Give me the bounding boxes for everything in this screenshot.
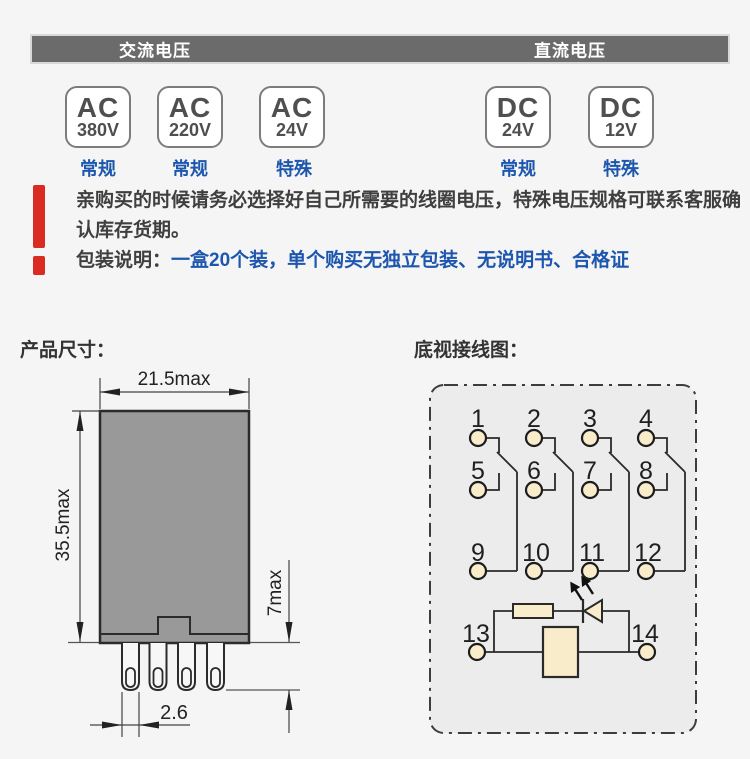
voltage-tag: 常规 xyxy=(157,155,223,181)
warning-exclamation-dot xyxy=(33,256,45,275)
wiring-section-title: 底视接线图： xyxy=(414,335,528,362)
pin-label-14: 14 xyxy=(631,620,659,648)
dimension-arrow xyxy=(102,722,122,729)
notice-block: 亲购买的时候请务必选择好自己所需要的线圈电压，特殊电压规格可联系客服确认库存货期… xyxy=(76,186,744,276)
packaging-label: 包装说明： xyxy=(76,250,171,271)
dim-pin-length-label: 7max xyxy=(265,569,286,616)
voltage-option-ac-380v[interactable]: AC 380V xyxy=(65,86,131,148)
pin-label-10: 10 xyxy=(522,539,550,567)
dc-voltage-header: 直流电压 xyxy=(534,37,606,62)
voltage-option-ac-220v[interactable]: AC 220V xyxy=(157,86,223,148)
voltage-value: 12V xyxy=(605,121,637,140)
wiring-diagram: 1 2 3 4 5 6 7 8 9 10 11 12 13 14 xyxy=(420,375,720,750)
voltage-value: 24V xyxy=(502,121,534,140)
warning-exclamation-icon xyxy=(33,185,45,248)
voltage-value: 380V xyxy=(77,121,119,140)
voltage-type: AC xyxy=(169,95,211,121)
voltage-tag: 特殊 xyxy=(261,155,327,181)
packaging-text: 一盒20个装，单个购买无独立包装、无说明书、合格证 xyxy=(171,250,629,271)
voltage-type: AC xyxy=(77,95,119,121)
relay-pin xyxy=(207,643,224,690)
dimension-arrow xyxy=(77,411,84,431)
pin-label-2: 2 xyxy=(527,405,541,433)
dimension-arrow xyxy=(286,690,293,710)
dimension-arrow xyxy=(77,622,84,642)
pin-label-3: 3 xyxy=(583,405,597,433)
voltage-tag: 常规 xyxy=(65,155,131,181)
dimension-arrow xyxy=(100,389,120,396)
pin-label-8: 8 xyxy=(639,457,653,485)
ac-voltage-header: 交流电压 xyxy=(119,37,191,62)
resistor-symbol xyxy=(513,604,553,618)
warning-text: 亲购买的时候请务必选择好自己所需要的线圈电压，特殊电压规格可联系客服确认库存货期… xyxy=(76,186,744,246)
relay-pin xyxy=(122,643,139,690)
dimensions-diagram: 21.5max 35.5max 7max 2.6 xyxy=(40,355,320,755)
dim-width-label: 21.5max xyxy=(138,369,211,390)
voltage-option-dc-12v[interactable]: DC 12V xyxy=(588,86,654,148)
relay-pin xyxy=(178,643,195,690)
dimension-arrow xyxy=(229,389,249,396)
pin-label-7: 7 xyxy=(583,457,597,485)
relay-pins xyxy=(122,643,224,690)
pin-label-13: 13 xyxy=(462,620,490,648)
pin-label-12: 12 xyxy=(634,539,662,567)
pin-label-6: 6 xyxy=(527,457,541,485)
voltage-option-ac-24v[interactable]: AC 24V xyxy=(259,86,325,148)
packaging-line: 包装说明：一盒20个装，单个购买无独立包装、无说明书、合格证 xyxy=(76,246,744,276)
pin-holes xyxy=(126,668,220,687)
voltage-header-bar: 交流电压 直流电压 xyxy=(30,34,730,64)
voltage-type: DC xyxy=(600,95,642,121)
height-dimension xyxy=(72,411,100,642)
dimension-arrow xyxy=(139,722,159,729)
dimension-arrow xyxy=(286,622,293,642)
relay-pin xyxy=(150,643,167,690)
voltage-tag: 常规 xyxy=(485,155,551,181)
coil-symbol xyxy=(543,627,578,677)
voltage-value: 220V xyxy=(169,121,211,140)
pin-label-5: 5 xyxy=(471,457,485,485)
pin-label-1: 1 xyxy=(471,405,485,433)
pin-label-11: 11 xyxy=(579,539,605,567)
pin-label-9: 9 xyxy=(471,539,485,567)
voltage-type: DC xyxy=(497,95,539,121)
voltage-type: AC xyxy=(271,95,313,121)
voltage-value: 24V xyxy=(276,121,308,140)
dim-pin-pitch-label: 2.6 xyxy=(160,702,188,724)
voltage-option-dc-24v[interactable]: DC 24V xyxy=(485,86,551,148)
product-infographic-page: 交流电压 直流电压 AC 380V AC 220V AC 24V DC 24V … xyxy=(0,0,750,759)
voltage-tag: 特殊 xyxy=(588,155,654,181)
pin-label-4: 4 xyxy=(639,405,653,433)
dim-height-label: 35.5max xyxy=(53,488,74,561)
relay-body xyxy=(100,411,249,643)
